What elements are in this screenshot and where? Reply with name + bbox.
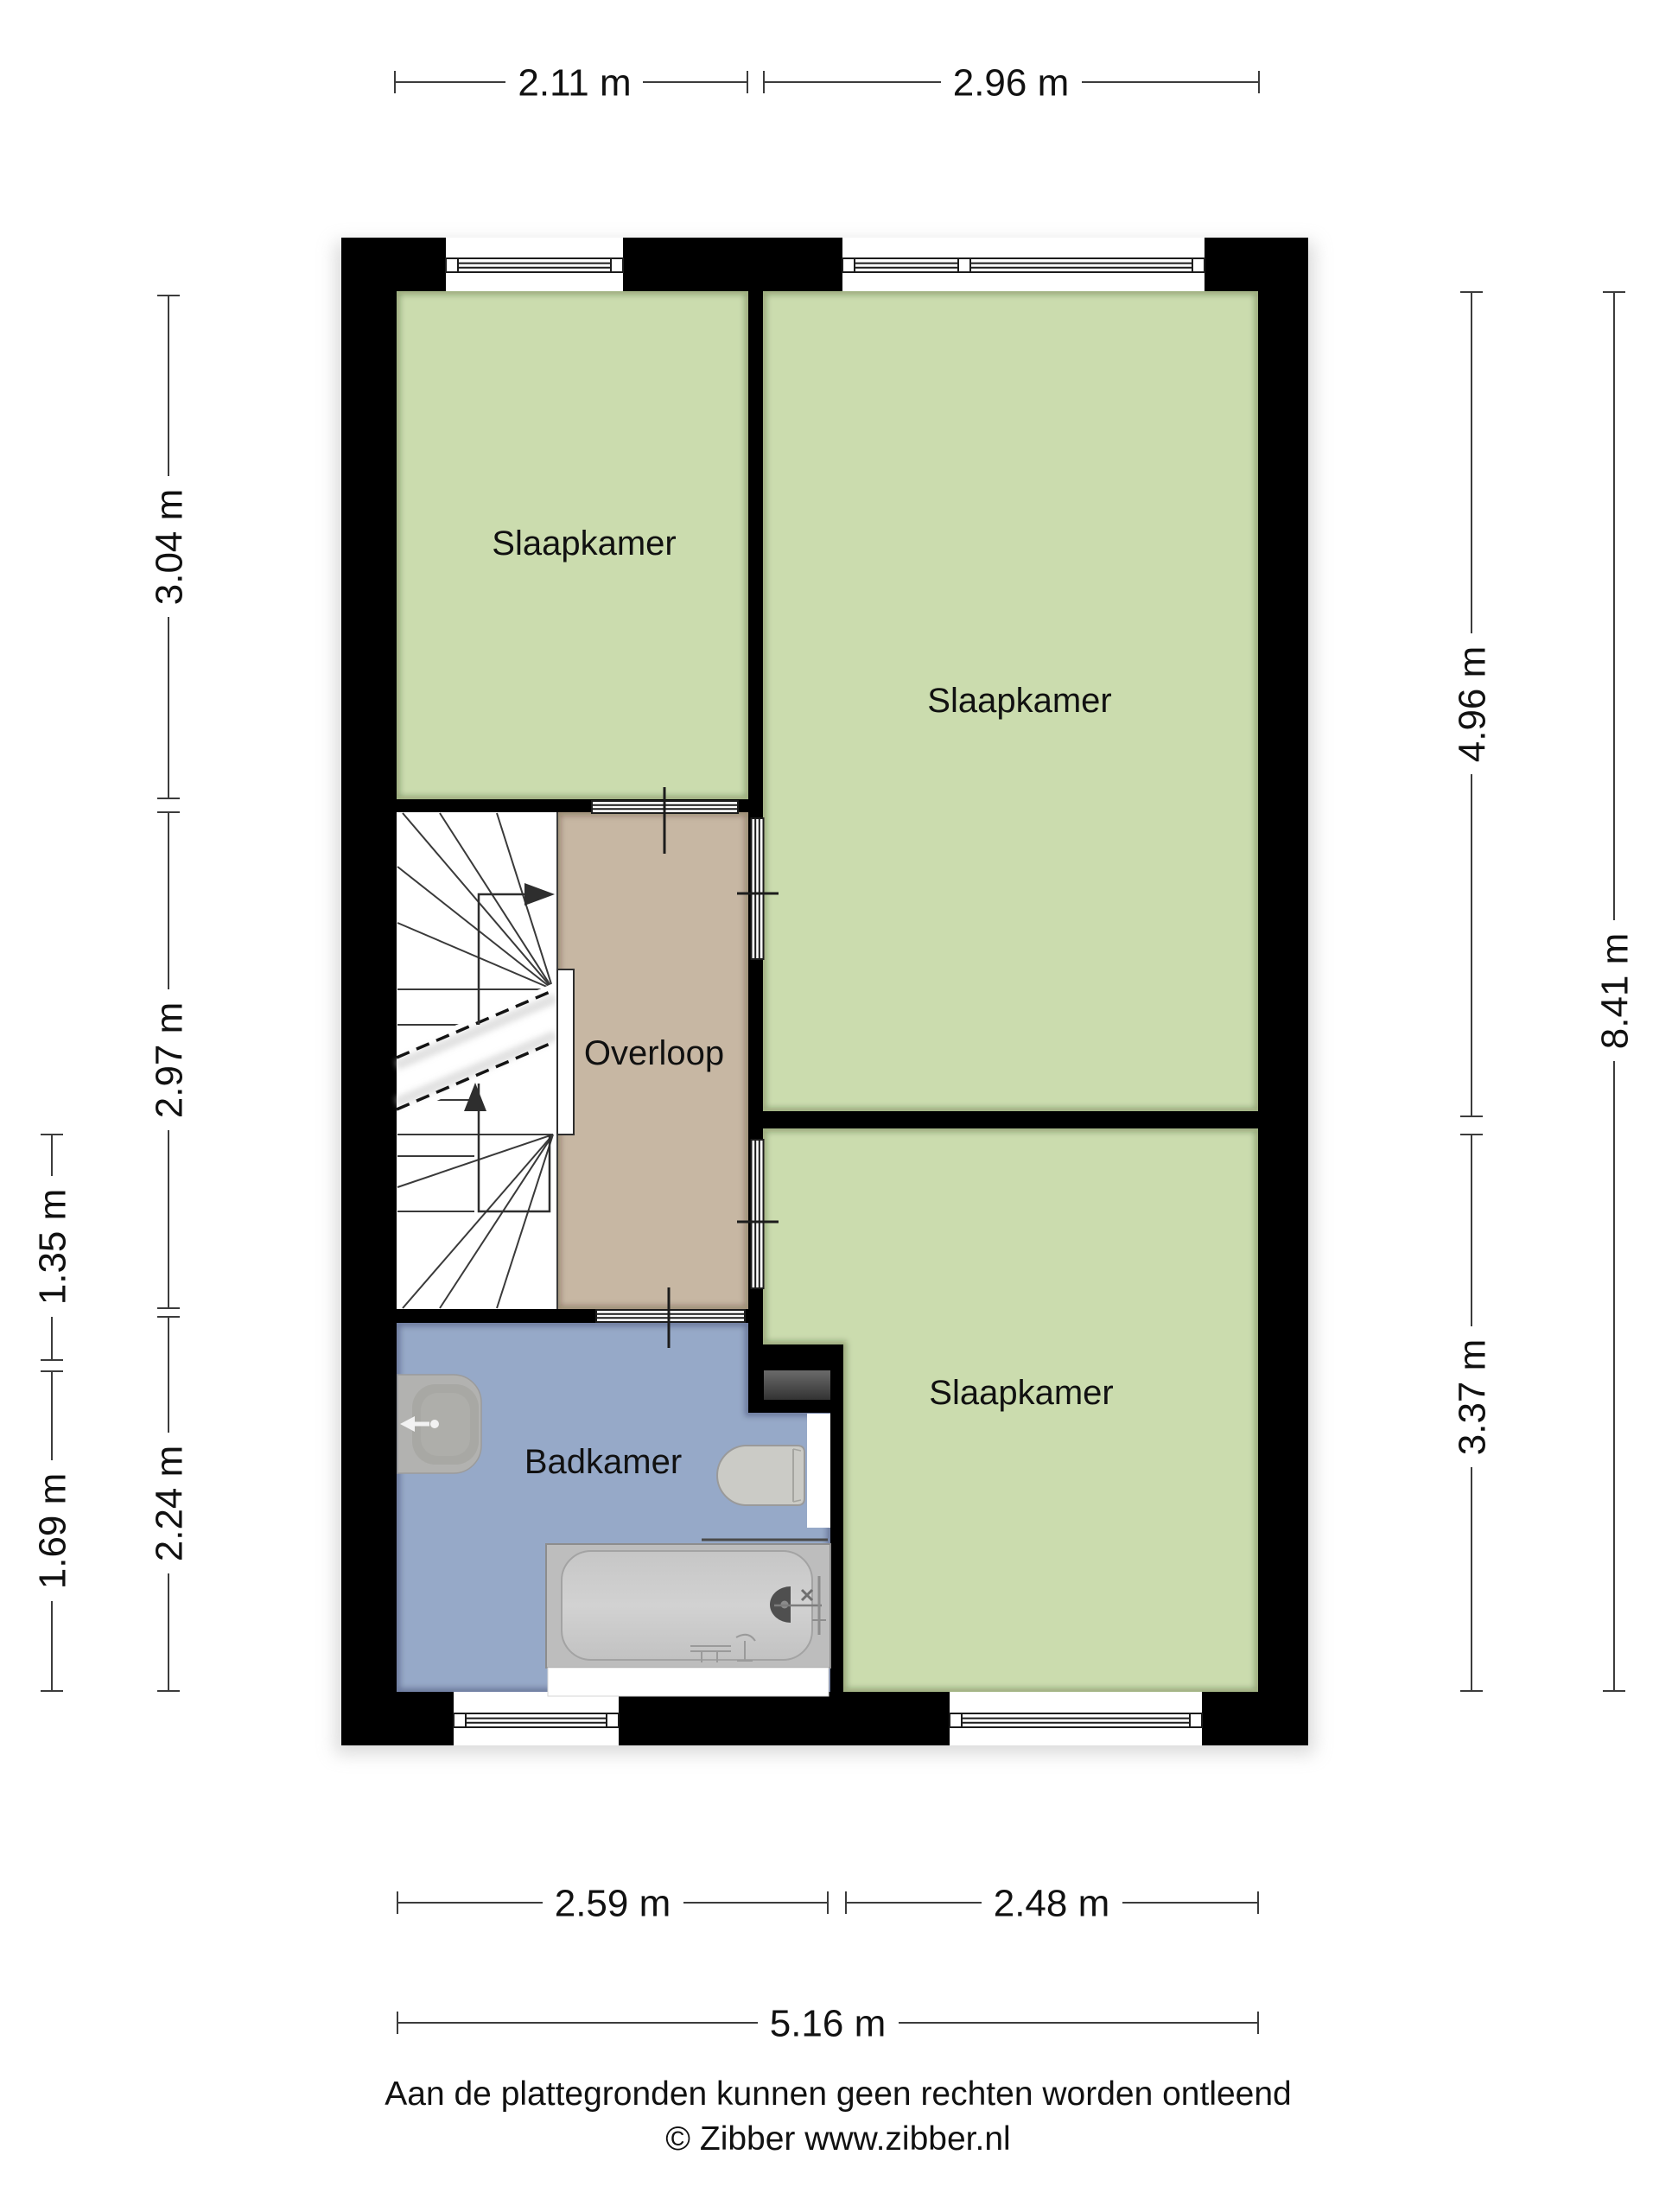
svg-text:2.97 m: 2.97 m xyxy=(149,1002,191,1119)
svg-text:8.41 m: 8.41 m xyxy=(1594,933,1637,1050)
svg-text:Overloop: Overloop xyxy=(584,1034,724,1072)
svg-text:2.48 m: 2.48 m xyxy=(994,1883,1110,1925)
svg-text:2.59 m: 2.59 m xyxy=(555,1883,671,1925)
svg-text:2.24 m: 2.24 m xyxy=(149,1446,191,1562)
svg-text:1.69 m: 1.69 m xyxy=(32,1473,74,1590)
svg-text:3.37 m: 3.37 m xyxy=(1452,1339,1494,1456)
svg-text:1.35 m: 1.35 m xyxy=(32,1189,74,1306)
svg-text:© Zibber www.zibber.nl: © Zibber www.zibber.nl xyxy=(665,2120,1010,2158)
svg-text:Slaapkamer: Slaapkamer xyxy=(927,682,1111,720)
svg-text:3.04 m: 3.04 m xyxy=(149,489,191,606)
svg-text:4.96 m: 4.96 m xyxy=(1452,646,1494,763)
svg-text:2.11 m: 2.11 m xyxy=(518,62,631,105)
svg-text:5.16 m: 5.16 m xyxy=(770,2003,887,2045)
svg-text:Slaapkamer: Slaapkamer xyxy=(492,524,676,563)
svg-text:Aan de plattegronden kunnen ge: Aan de plattegronden kunnen geen rechten… xyxy=(385,2075,1292,2113)
svg-text:2.96 m: 2.96 m xyxy=(953,62,1070,105)
svg-text:Slaapkamer: Slaapkamer xyxy=(929,1374,1113,1412)
svg-text:Badkamer: Badkamer xyxy=(524,1443,682,1481)
